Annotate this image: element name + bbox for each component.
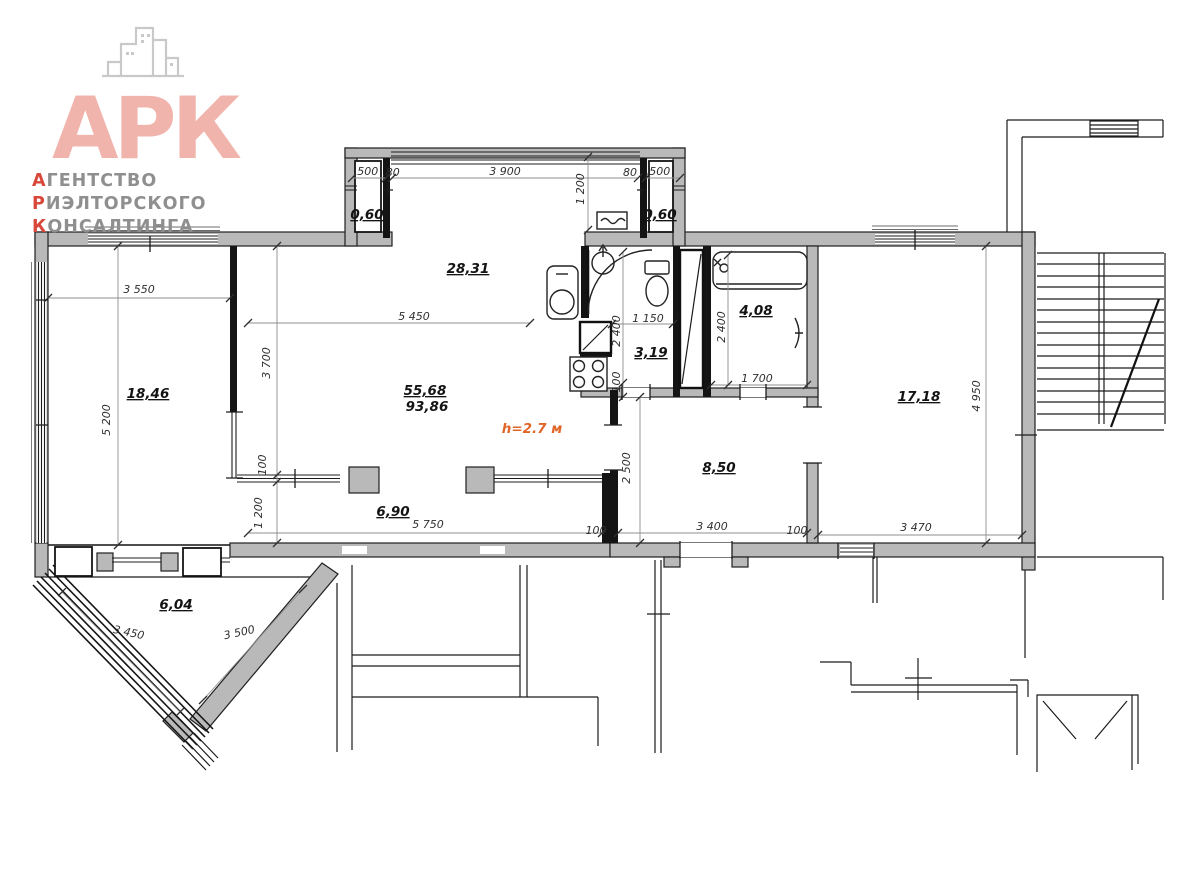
- dim: 1 200: [252, 497, 265, 529]
- dim: 100: [586, 524, 607, 537]
- logo-line-3: КОНСАЛТИНГА: [32, 217, 194, 237]
- dim: 2 400: [715, 311, 728, 343]
- pier: [97, 553, 113, 571]
- dim: 3 550: [123, 283, 155, 296]
- dim: 3 470: [900, 521, 932, 534]
- logo-line-1: АГЕНТСТВО: [32, 171, 157, 191]
- dim: 1 150: [632, 312, 664, 325]
- neighbor-outlines: [337, 557, 1028, 755]
- dim: 100: [610, 372, 623, 393]
- terrace-glazing: [33, 565, 213, 749]
- floor-plan-page: 0,60 0,60 28,31 18,46 55,68 93,86 h=2.7 …: [0, 0, 1200, 874]
- terrace-structure: [33, 547, 338, 770]
- dim: ,500: [646, 165, 671, 178]
- dim: 3 900: [489, 165, 521, 178]
- area-living-kitchen: 28,31: [447, 261, 490, 277]
- area-living-total: 55,68: [404, 383, 447, 399]
- dim: 5 750: [412, 518, 444, 531]
- area-bay-right: 0,60: [643, 207, 676, 223]
- dim: 3 400: [696, 520, 728, 533]
- dim: 2 400: [610, 315, 623, 347]
- logo-line-2: РИЭЛТОРСКОГО: [32, 194, 207, 214]
- elevator-shaft: [1037, 695, 1138, 772]
- area-total: 93,86: [406, 399, 449, 415]
- faucet-fixture: [795, 318, 803, 348]
- dim: 3 500: [223, 623, 257, 642]
- shower-fixture: [592, 245, 614, 274]
- area-room-left: 18,46: [127, 386, 170, 402]
- dim: 4 950: [970, 380, 983, 412]
- agency-logo: АРК АГЕНТСТВО РИЭЛТОРСКОГО КОНСАЛТИНГА: [22, 6, 252, 246]
- area-terrace: 6,04: [159, 597, 192, 613]
- area-bathroom-tub: 4,08: [738, 303, 772, 319]
- area-bay-left: 0,60: [350, 207, 383, 223]
- loggia-column: [466, 467, 494, 493]
- bathtub-fixture: [713, 252, 807, 289]
- logo-monogram: АРК: [52, 79, 242, 179]
- dim: .80: [382, 166, 400, 179]
- vent-shaft: [580, 322, 611, 353]
- pier: [161, 553, 178, 571]
- area-room-right: 17,18: [898, 389, 941, 405]
- ceiling-height: h=2.7 м: [502, 421, 563, 437]
- dim: 1 200: [574, 173, 587, 205]
- dim: 80: [623, 166, 637, 179]
- dim: .500: [354, 165, 379, 178]
- dim: 3 700: [260, 347, 273, 379]
- dim: 100: [787, 524, 808, 537]
- bathroom-door: [588, 250, 652, 314]
- dim: 5 450: [398, 310, 430, 323]
- kitchen-sink-fixture: [547, 266, 578, 319]
- washing-machine-fixture: [597, 212, 627, 229]
- dim: 1 700: [741, 372, 773, 385]
- area-bathroom-shower: 3,19: [634, 345, 667, 361]
- stove-fixture: [570, 357, 607, 391]
- dim: 2 500: [620, 452, 633, 484]
- duct-shaft: [680, 250, 703, 388]
- stair-direction-arrow: [1111, 299, 1159, 427]
- toilet-fixture: [645, 261, 669, 306]
- loggia-column: [349, 467, 379, 493]
- loggia-window: [237, 475, 602, 482]
- area-loggia: 6,90: [376, 504, 409, 520]
- dim: 100: [256, 455, 269, 476]
- area-hallway: 8,50: [702, 460, 735, 476]
- logo-buildings-icon: [102, 28, 184, 76]
- dim: 5 200: [100, 404, 113, 436]
